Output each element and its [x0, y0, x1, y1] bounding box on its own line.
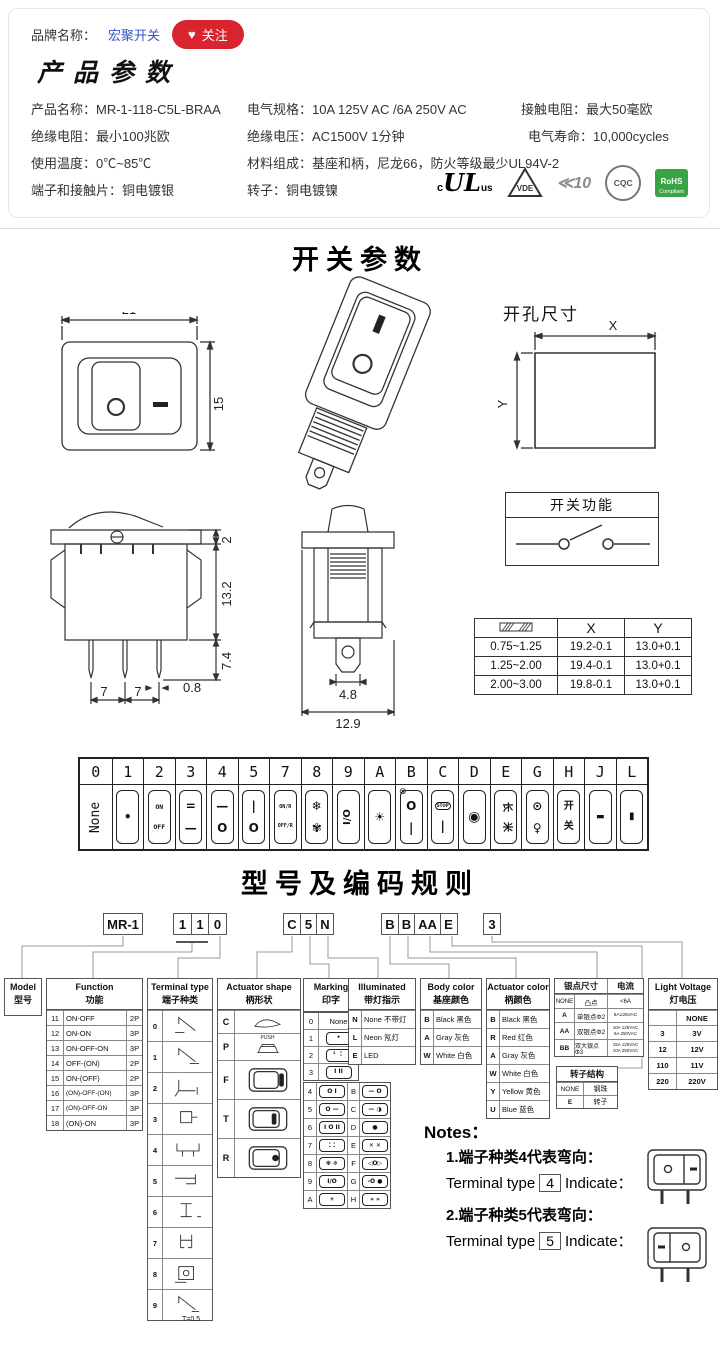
- terminal-drawing: [168, 1014, 208, 1038]
- spec-label: 电气寿命：: [528, 129, 593, 144]
- marking-symbol: ✕ ✕: [362, 1139, 388, 1152]
- strip-code: J: [585, 759, 616, 785]
- strip-code: 9: [333, 759, 364, 785]
- illuminated-desc: LED: [361, 1047, 415, 1064]
- body-color-row: BBlack 黑色: [421, 1010, 481, 1028]
- hole-size-drawing: X Y: [495, 318, 675, 468]
- marking-pair-row: 6I O IID●: [304, 1118, 390, 1136]
- side-view-drawing: 2 13.2 7.4 0.8 7 7: [35, 500, 275, 725]
- silver-desc: 单银点Φ2: [574, 1009, 607, 1022]
- actuator-color-row: UBlue 蓝色: [487, 1100, 549, 1118]
- function-code: 13: [47, 1041, 63, 1055]
- function-column: Function 功能 11ON-OFF2P 12ON-ON3P 13ON-OF…: [46, 978, 143, 1131]
- actuator-color-row: RRed 红色: [487, 1028, 549, 1046]
- strip-code: C: [428, 759, 459, 785]
- marking-symbol: O —: [319, 1103, 345, 1116]
- body-color-column: Body color 基座颜色 BBlack 黑色 AGray 灰色 WWhit…: [420, 978, 482, 1065]
- silver-code: NONE: [555, 995, 574, 1008]
- section-divider: [0, 228, 720, 229]
- marking-code: 2: [304, 1047, 318, 1063]
- spec-insulation-voltage: 绝缘电压：AC1500V 1分钟: [247, 126, 405, 145]
- silver-current: 6A125VAC: [607, 1009, 643, 1022]
- front-width-dim: 21: [122, 312, 136, 317]
- marking-code: 3: [304, 1064, 318, 1080]
- marking-symbol: O I: [319, 1085, 345, 1098]
- follow-label: 关注: [202, 25, 228, 44]
- panel-thickness-range: 0.75~1.25: [475, 638, 558, 657]
- shape-code: P: [218, 1034, 234, 1060]
- brand-label: 品牌名称：: [31, 25, 96, 44]
- marking-symbol: -O ●: [362, 1175, 388, 1188]
- function-code: 14: [47, 1056, 63, 1070]
- glyph: I/O: [343, 809, 353, 825]
- terminal-type-code-box: 4: [539, 1174, 561, 1192]
- strip-col-H: H 开关: [553, 759, 585, 849]
- spec-label: 转子：: [247, 183, 286, 198]
- panel-y-value: 13.0+0.1: [625, 638, 692, 657]
- spec-label: 端子和接触片：: [31, 183, 122, 198]
- function-name: (ON)-OFF-(ON): [63, 1086, 126, 1100]
- spec-label: 接触电阻：: [521, 102, 586, 117]
- voltage-row: 11011V: [649, 1057, 717, 1073]
- color-desc: White 白色: [499, 1065, 549, 1082]
- circle-bar-marking-icon: O|: [400, 790, 423, 844]
- panel-thickness-icon: [499, 622, 533, 632]
- glyph: OFF: [153, 824, 165, 831]
- terminal-code: 0: [148, 1011, 162, 1041]
- marking-code: A: [304, 1191, 316, 1208]
- function-header-cn: 功能: [47, 994, 142, 1007]
- color-code: R: [487, 1029, 499, 1046]
- color-desc: Red 红色: [499, 1029, 549, 1046]
- model-header-cn: 型号: [5, 994, 41, 1007]
- marking-code: 9: [304, 1173, 316, 1190]
- glyph: 米: [501, 822, 511, 832]
- fan-glyph: ✾: [312, 822, 322, 834]
- strip-code: 4: [207, 759, 238, 785]
- terminal-drawing: [168, 1076, 208, 1100]
- marking-code: G: [347, 1173, 359, 1190]
- heart-icon: ♥: [188, 27, 196, 42]
- body-color-row: WWhite 白色: [421, 1046, 481, 1064]
- spec-rotor-plating: 转子：铜电镀镍: [247, 180, 338, 199]
- strip-col-3: 3 =—: [175, 759, 207, 849]
- shape-code: T: [218, 1100, 234, 1138]
- voltage-value: 11V: [676, 1058, 717, 1073]
- silver-row: NONE凸点<6A: [555, 994, 643, 1008]
- function-poles: 2P: [126, 1071, 142, 1085]
- spec-electrical-rating: 电气规格：10A 125V AC /6A 250V AC: [247, 99, 467, 118]
- glyph: 长: [501, 802, 511, 812]
- vde-certification-icon: VDE: [507, 167, 543, 199]
- silver-point-column: 银点尺寸 电流 NONE凸点<6A A单银点Φ26A125VAC AA双银点Φ2…: [554, 978, 644, 1057]
- voltage-code: 110: [649, 1058, 676, 1073]
- strip-code: 8: [302, 759, 333, 785]
- function-name: (ON)-OFF-ON: [63, 1101, 126, 1115]
- terminal-code: 6: [148, 1197, 162, 1227]
- function-name: OFF-(ON): [63, 1056, 126, 1070]
- spec-insulation-resistance: 绝缘电阻：最小100兆欧: [31, 126, 170, 145]
- color-code: A: [421, 1029, 433, 1046]
- panel-x-value: 19.4-0.1: [558, 657, 625, 676]
- glyph: ▮: [629, 812, 635, 822]
- glyph: ▬: [596, 813, 605, 822]
- silver-code: A: [555, 1009, 574, 1022]
- function-poles: 3P: [126, 1086, 142, 1100]
- certification-logos: c UL us VDE ≪10 CQC RoHS Compliant: [437, 165, 688, 201]
- terminal-drawing: [168, 1107, 208, 1131]
- function-code: 11: [47, 1011, 63, 1025]
- shape-header-en: Actuator shape: [218, 981, 300, 994]
- voltage-row: 1212V: [649, 1041, 717, 1057]
- strip-col-A: A ☀: [364, 759, 396, 849]
- body-color-header-cn: 基座颜色: [421, 994, 481, 1007]
- marking-code: E: [347, 1137, 359, 1154]
- marking-code: 7: [304, 1137, 316, 1154]
- illuminated-row: NNone 不带灯: [349, 1010, 415, 1028]
- voltage-row: 33V: [649, 1025, 717, 1041]
- terminal-type-code-box: 5: [539, 1232, 561, 1250]
- code-box-rotor: E: [440, 913, 458, 935]
- marking-code: B: [347, 1083, 359, 1100]
- color-code: B: [487, 1011, 499, 1028]
- actuator-color-row: AGray 灰色: [487, 1046, 549, 1064]
- glyph: OFF/R: [278, 824, 293, 829]
- spec-value: 最大50毫欧: [586, 102, 652, 117]
- illuminated-header-cn: 带灯指示: [349, 994, 415, 1007]
- terminal-header-en: Terminal type: [148, 981, 212, 994]
- code-box-digit: 1: [191, 913, 210, 935]
- strip-code: 5: [239, 759, 270, 785]
- snowflake-fan-marking-icon: ❄✾: [305, 790, 328, 844]
- product-detail-page: 品牌名称： 宏聚开关 ♥ 关注 产品参数 产品名称：MR-1-118-C5L-B…: [0, 0, 720, 1345]
- illuminated-header-en: Illuminated: [349, 981, 415, 994]
- voltage-value: 220V: [676, 1074, 717, 1089]
- marking-pair-row: 9I/OG-O ●: [304, 1172, 390, 1190]
- strip-code: 7: [270, 759, 301, 785]
- indicate-label: Indicate：: [565, 1233, 633, 1250]
- function-header-en: Function: [47, 981, 142, 994]
- function-poles: 3P: [126, 1116, 142, 1130]
- indicate-label: Indicate：: [565, 1175, 633, 1192]
- switch-params-title: 开关参数: [0, 238, 720, 277]
- color-desc: Blue 蓝色: [499, 1101, 549, 1118]
- strip-col-8: 8 ❄✾: [301, 759, 333, 849]
- terminal-drawing: [168, 1262, 208, 1286]
- function-poles: 2P: [126, 1011, 142, 1025]
- marking-code: F: [347, 1155, 359, 1172]
- shape-row: C: [218, 1010, 300, 1033]
- glyph: |: [252, 800, 256, 812]
- double-bar-marking-icon: =—: [179, 790, 202, 844]
- spec-label: 产品名称：: [31, 102, 96, 117]
- code-box-voltage: 3: [483, 913, 501, 935]
- rohs-certification-icon: RoHS Compliant: [655, 169, 688, 197]
- glyph: •: [124, 811, 132, 823]
- push-label: PUSH: [261, 1035, 275, 1041]
- glyph: =: [186, 800, 196, 812]
- voltage-value: 12V: [676, 1042, 717, 1057]
- function-row: 16(ON)-OFF-(ON)3P: [47, 1085, 142, 1100]
- strip-col-B: B ⊗O|: [395, 759, 427, 849]
- strip-col-7: 7 ON/ROFF/R: [269, 759, 301, 849]
- marking-code: 8: [304, 1155, 316, 1172]
- spec-operating-temp: 使用温度：0℃~85℃: [31, 153, 151, 172]
- glyph: —: [216, 800, 228, 812]
- spst-circuit-symbol: [506, 518, 656, 562]
- actuator-color-column: Actuator color 柄颜色 BBlack 黑色 RRed 红色 AGr…: [486, 978, 550, 1119]
- bar-circle-marking-icon: —O: [211, 790, 234, 844]
- function-row: 18(ON)-ON3P: [47, 1115, 142, 1130]
- function-code: 15: [47, 1071, 63, 1085]
- marking-code: 1: [304, 1030, 318, 1046]
- spec-terminal-plating: 端子和接触片：铜电镀银: [31, 180, 174, 199]
- silver-desc: 凸点: [574, 995, 607, 1008]
- actuator-color-row: YYellow 黄色: [487, 1082, 549, 1100]
- terminal-row: 5: [148, 1165, 212, 1196]
- terminal-row: 0: [148, 1010, 212, 1041]
- color-desc: Gray 灰色: [433, 1029, 481, 1046]
- terminal-drawing: [168, 1045, 208, 1069]
- silver-row: A单银点Φ26A125VAC: [555, 1008, 643, 1022]
- ul-label: UL: [443, 172, 481, 194]
- strip-code: E: [491, 759, 522, 785]
- panel-y-value: 13.0+0.1: [625, 676, 692, 695]
- cqc-label: CQC: [614, 178, 633, 188]
- marking-pair-row: 7⁚ ⁚E✕ ✕: [304, 1136, 390, 1154]
- marking-pair-row: 5O —C— ◑: [304, 1100, 390, 1118]
- profile-view-drawing: 4.8 12.9: [292, 500, 412, 740]
- note-2-indicate: Terminal type5Indicate：: [446, 1230, 633, 1251]
- rotor-code: NONE: [557, 1083, 583, 1095]
- model-header-en: Model: [5, 981, 41, 994]
- spec-label: 材料组成：: [247, 156, 312, 171]
- code-box-silver: AA: [414, 913, 441, 935]
- illuminated-row: ELED: [349, 1046, 415, 1064]
- table-row: 0.75~1.25 19.2-0.1 13.0+0.1: [475, 638, 692, 657]
- spec-label: 电气规格：: [247, 102, 312, 117]
- terminal-header-cn: 端子种类: [148, 994, 212, 1007]
- spec-value: 10,000cycles: [593, 129, 669, 144]
- panel-thickness-range: 2.00~3.00: [475, 676, 558, 695]
- panel-y-value: 13.0+0.1: [625, 657, 692, 676]
- shape-drawing-t: [240, 1104, 296, 1134]
- glyph: |: [441, 820, 445, 832]
- rohs-label: RoHS: [661, 177, 683, 186]
- strip-col-G: G ⊙♀: [521, 759, 553, 849]
- brand-link[interactable]: 宏聚开关: [108, 25, 160, 44]
- function-row: 17(ON)-OFF-ON3P: [47, 1100, 142, 1115]
- function-code-underline: [176, 941, 208, 943]
- enec-10-certification-icon: ≪10: [557, 173, 592, 193]
- spec-contact-resistance: 接触电阻：最大50毫欧: [521, 99, 652, 118]
- shape-drawing-f: [240, 1065, 296, 1095]
- shape-drawing-curved: [240, 1013, 296, 1031]
- lamp-glyph: ☀: [374, 811, 385, 823]
- marking-symbol: ●: [362, 1121, 388, 1134]
- voltage-code: 12: [649, 1042, 676, 1057]
- code-box-digit: 1: [173, 913, 192, 935]
- color-code: B: [421, 1011, 433, 1028]
- glyph: —: [185, 822, 197, 834]
- function-poles: 3P: [126, 1026, 142, 1040]
- strip-col-D: D ◉: [458, 759, 490, 849]
- terminal-code: 9: [148, 1290, 162, 1320]
- color-desc: Black 黑色: [433, 1011, 481, 1028]
- function-name: (ON)-ON: [63, 1116, 126, 1130]
- side-dim-7-left: 7: [100, 684, 107, 699]
- spec-product-name: 产品名称：MR-1-118-C5L-BRAA: [31, 99, 221, 118]
- silver-size-header: 银点尺寸: [555, 979, 607, 993]
- code-box-marking: 5: [300, 913, 318, 935]
- marking-symbol: ✾ ❄: [319, 1157, 345, 1170]
- shape-code: R: [218, 1139, 234, 1177]
- note-2-text: 2.端子种类5代表弯向：: [446, 1204, 602, 1225]
- table-row: 2.00~3.00 19.8-0.1 13.0+0.1: [475, 676, 692, 695]
- strip-code: A: [365, 759, 396, 785]
- actuator-color-row: WWhite 白色: [487, 1064, 549, 1082]
- terminal-type-label: Terminal type: [446, 1233, 535, 1250]
- front-height-dim: 15: [211, 397, 225, 411]
- onr-offr-marking-icon: ON/ROFF/R: [274, 790, 297, 844]
- terminal-drawing: [168, 1138, 208, 1162]
- io-marking-icon: I/O: [337, 790, 360, 844]
- terminal-thickness-note: T=0.5: [182, 1316, 200, 1323]
- terminal-code: 1: [148, 1042, 162, 1072]
- svg-text:VDE: VDE: [516, 184, 533, 193]
- illuminated-code: E: [349, 1047, 361, 1064]
- spec-label: 绝缘电阻：: [31, 129, 96, 144]
- perspective-view-drawing: [268, 275, 448, 495]
- marking-symbol: I II: [326, 1066, 352, 1079]
- silver-code: BB: [555, 1040, 574, 1056]
- marking-pair-table: 4O IB— O 5O —C— ◑ 6I O IID● 7⁚ ⁚E✕ ✕ 8✾ …: [303, 1082, 391, 1209]
- voltage-code: [649, 1011, 676, 1025]
- terminal-row: 3: [148, 1103, 212, 1134]
- spec-value: 铜电镀镍: [286, 183, 338, 198]
- actuator-color-header-cn: 柄颜色: [487, 994, 549, 1007]
- rohs-compliant-label: Compliant: [659, 189, 684, 195]
- terminal-code: 2: [148, 1073, 162, 1103]
- marking-code: C: [347, 1101, 359, 1118]
- switch-function-box: 开关功能: [505, 492, 659, 566]
- kai-guan-marking-icon: 开关: [557, 790, 580, 844]
- glyph: 关: [564, 822, 574, 832]
- glyph: O: [406, 800, 416, 812]
- strip-col-J: J ▬: [584, 759, 616, 849]
- lamp-marking-icon: ☀: [368, 790, 391, 844]
- body-color-header-en: Body color: [421, 981, 481, 994]
- silver-row: BB双大银点Φ315A 125VAC10A 250VAC: [555, 1039, 643, 1056]
- color-code: A: [487, 1047, 499, 1064]
- marking-pair-row: A☀H» »: [304, 1190, 390, 1208]
- marking-code: 0: [304, 1013, 318, 1029]
- glyph: ⊙: [532, 800, 542, 812]
- spec-label: 使用温度：: [31, 156, 96, 171]
- glyph: ON/R: [279, 805, 291, 810]
- marking-row: 3I II: [304, 1063, 358, 1080]
- code-box-actuator-color: B: [398, 913, 416, 935]
- color-desc: Black 黑色: [499, 1011, 549, 1028]
- product-info-card: 品牌名称： 宏聚开关 ♥ 关注 产品参数 产品名称：MR-1-118-C5L-B…: [8, 8, 710, 218]
- voltage-value: 3V: [676, 1026, 717, 1041]
- panel-col-y: Y: [625, 619, 692, 638]
- follow-button[interactable]: ♥ 关注: [172, 20, 244, 49]
- spec-value: 最小100兆欧: [96, 129, 170, 144]
- strip-col-2: 2 ONOFF: [143, 759, 175, 849]
- cqc-certification-icon: CQC: [605, 165, 641, 201]
- terminal-type-5-switch-drawing: [646, 1226, 710, 1286]
- code-box-body-color: B: [381, 913, 399, 935]
- note-1-text: 1.端子种类4代表弯向：: [446, 1146, 602, 1167]
- light-voltage-column: Light Voltage 灯电压 NONE 33V 1212V 11011V …: [648, 978, 718, 1090]
- ul-us-label: us: [481, 183, 493, 194]
- table-row: 1.25~2.00 19.4-0.1 13.0+0.1: [475, 657, 692, 676]
- glyph: O: [217, 822, 227, 834]
- terminal-drawing: [168, 1293, 208, 1317]
- terminal-row: 4: [148, 1134, 212, 1165]
- panel-thickness-table: X Y 0.75~1.25 19.2-0.1 13.0+0.1 1.25~2.0…: [474, 618, 692, 695]
- glyph: |: [409, 822, 413, 834]
- snowflake-glyph: ❄: [312, 800, 322, 812]
- strip-col-0: 0 None: [80, 759, 112, 849]
- spec-value: 10A 125V AC /6A 250V AC: [312, 102, 467, 117]
- hole-x-dim: X: [609, 318, 618, 333]
- panel-thickness-range: 1.25~2.00: [475, 657, 558, 676]
- side-dim-13-2: 13.2: [219, 581, 234, 606]
- illuminated-code: N: [349, 1011, 361, 1028]
- silver-current: 6A 250VAC: [614, 1031, 637, 1037]
- dash-marking-icon: ▬: [589, 790, 612, 844]
- silver-current: 10A 250VAC: [613, 1048, 638, 1054]
- voltage-code: 3: [649, 1026, 676, 1041]
- strip-code: 0: [80, 759, 112, 785]
- function-code: 18: [47, 1116, 63, 1130]
- coding-rules-title: 型号及编码规则: [0, 862, 720, 901]
- illuminated-desc: Neon 氖灯: [361, 1029, 415, 1046]
- vbar-marking-icon: ▮: [620, 790, 643, 844]
- model-column: Model 型号: [4, 978, 42, 1016]
- terminal-row: 1: [148, 1041, 212, 1072]
- spec-value: MR-1-118-C5L-BRAA: [96, 102, 221, 117]
- marking-symbol: ◁O▷: [362, 1157, 388, 1170]
- silver-desc: 双大银点Φ3: [574, 1040, 607, 1056]
- illuminated-column: Illuminated 带灯指示 NNone 不带灯 LNeon 氖灯 ELED: [348, 978, 416, 1065]
- body-color-row: AGray 灰色: [421, 1028, 481, 1046]
- on-off-marking-icon: ONOFF: [148, 790, 171, 844]
- strip-code: 2: [144, 759, 175, 785]
- marking-code-strip: 0 None 1 • 2 ONOFF 3 =— 4 —O 5 |O 7 ON/R…: [78, 757, 649, 851]
- profile-dim-4-8: 4.8: [339, 687, 357, 702]
- rotor-structure-column: 转子结构 NONE钢珠 E转子: [556, 1066, 618, 1109]
- illuminated-code: L: [349, 1029, 361, 1046]
- rotor-row: E转子: [557, 1095, 617, 1108]
- panel-x-value: 19.8-0.1: [558, 676, 625, 695]
- marking-symbol: » »: [362, 1193, 388, 1206]
- voltage-row: NONE: [649, 1010, 717, 1025]
- rotor-code: E: [557, 1096, 583, 1108]
- terminal-code: 4: [148, 1135, 162, 1165]
- dot-marking-icon: •: [116, 790, 139, 844]
- silver-code: AA: [555, 1023, 574, 1039]
- strip-code: D: [459, 759, 490, 785]
- marking-pair-row: 8✾ ❄F◁O▷: [304, 1154, 390, 1172]
- marking-symbol: I O II: [319, 1121, 345, 1134]
- color-code: W: [421, 1047, 433, 1064]
- stop-glyph: STOP: [435, 802, 451, 810]
- terminal-code: 8: [148, 1259, 162, 1289]
- silver-desc: 双银点Φ2: [574, 1023, 607, 1039]
